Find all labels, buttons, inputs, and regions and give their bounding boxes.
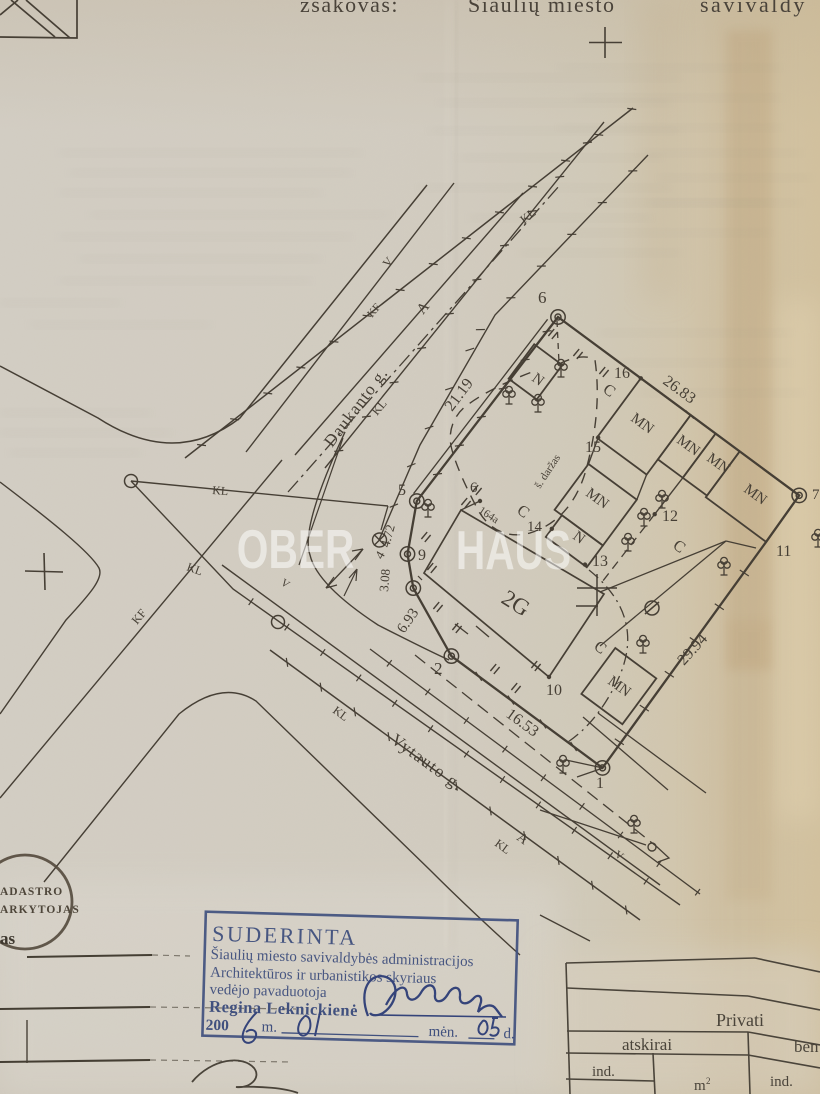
svg-text:HAUS: HAUS: [456, 520, 571, 581]
svg-text:ind.: ind.: [592, 1064, 615, 1080]
svg-text:16: 16: [614, 365, 630, 382]
svg-text:11: 11: [776, 543, 791, 560]
svg-text:zsakovas:: zsakovas:: [300, 0, 399, 17]
svg-text:atskirai: atskirai: [622, 1035, 672, 1054]
svg-text:mėn.: mėn.: [428, 1024, 458, 1041]
svg-text:KL: KL: [212, 483, 229, 498]
svg-text:2: 2: [434, 659, 443, 678]
svg-text:2: 2: [706, 1076, 711, 1086]
svg-text:13: 13: [592, 553, 608, 570]
svg-text:5: 5: [398, 482, 406, 499]
svg-text:10: 10: [546, 682, 562, 699]
svg-text:9: 9: [418, 547, 426, 564]
svg-text:6: 6: [538, 288, 547, 307]
svg-text:12: 12: [662, 508, 678, 525]
svg-text:d.: d.: [503, 1026, 515, 1042]
svg-text:Privati: Privati: [716, 1010, 764, 1030]
svg-text:as: as: [0, 929, 16, 948]
svg-text:200: 200: [205, 1017, 229, 1035]
svg-text:ben: ben: [794, 1037, 819, 1056]
svg-text:1: 1: [596, 775, 604, 792]
svg-text:SUDERINTA: SUDERINTA: [212, 921, 358, 950]
svg-text:ADASTRO: ADASTRO: [0, 886, 63, 898]
svg-text:3.08: 3.08: [376, 568, 393, 592]
svg-text:OBER: OBER: [237, 519, 355, 580]
svg-text:7: 7: [812, 487, 820, 503]
svg-text:Šiaulių miesto: Šiaulių miesto: [468, 0, 616, 17]
svg-text:m.: m.: [261, 1019, 277, 1035]
svg-text:15: 15: [585, 439, 601, 456]
svg-text:m: m: [694, 1078, 706, 1094]
svg-text:ARKYTOJAS: ARKYTOJAS: [0, 904, 80, 916]
svg-text:savivaldy: savivaldy: [700, 0, 807, 17]
svg-text:ind.: ind.: [770, 1074, 793, 1090]
svg-text:6: 6: [470, 480, 478, 496]
